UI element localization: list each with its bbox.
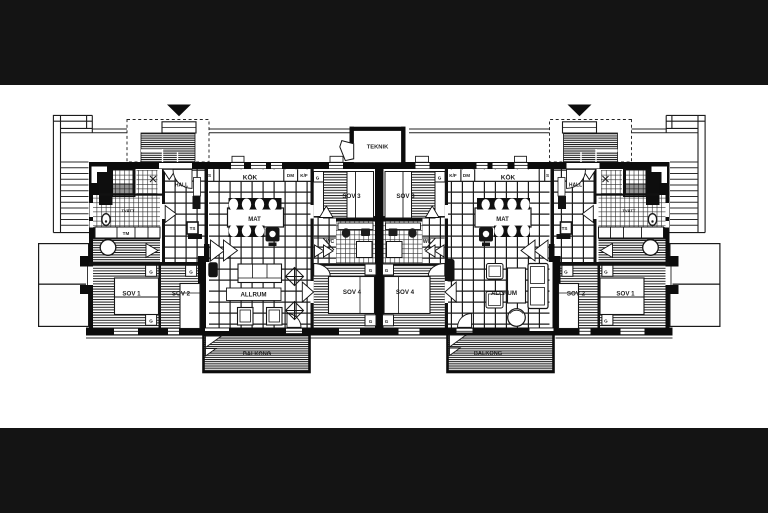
- svg-text:G: G: [189, 269, 193, 274]
- svg-text:SOV 3: SOV 3: [342, 193, 361, 200]
- svg-text:G: G: [316, 175, 320, 180]
- svg-text:S: S: [546, 173, 549, 178]
- svg-text:ALLRUM: ALLRUM: [240, 292, 266, 299]
- svg-text:SOV 2: SOV 2: [172, 291, 191, 298]
- svg-text:TS: TS: [562, 226, 568, 231]
- svg-text:HALL: HALL: [175, 183, 188, 189]
- svg-text:G: G: [564, 269, 568, 274]
- svg-text:G: G: [369, 268, 373, 273]
- svg-text:K/F: K/F: [449, 173, 457, 178]
- svg-text:HALL: HALL: [569, 183, 582, 189]
- svg-text:TS: TS: [190, 226, 196, 231]
- svg-text:MAT: MAT: [248, 217, 261, 223]
- svg-text:MAT: MAT: [496, 217, 509, 223]
- svg-text:SOV 1: SOV 1: [122, 291, 141, 298]
- svg-text:G: G: [604, 269, 608, 274]
- svg-text:K/F: K/F: [300, 173, 308, 178]
- svg-text:SOV 3: SOV 3: [396, 193, 415, 200]
- svg-text:S: S: [208, 173, 211, 178]
- svg-text:KÖK: KÖK: [243, 172, 258, 181]
- svg-text:G: G: [149, 318, 153, 323]
- svg-text:SOV 4: SOV 4: [396, 289, 415, 296]
- svg-text:DM: DM: [287, 173, 294, 178]
- svg-text:G: G: [385, 268, 389, 273]
- svg-text:G: G: [438, 175, 442, 180]
- svg-text:SOV 1: SOV 1: [616, 291, 635, 298]
- svg-text:TVÄTT: TVÄTT: [623, 208, 636, 213]
- svg-text:TVÄTT: TVÄTT: [122, 208, 135, 213]
- svg-text:G: G: [149, 269, 153, 274]
- svg-text:TEKNIK: TEKNIK: [367, 145, 389, 151]
- svg-text:SOV 4: SOV 4: [343, 289, 362, 296]
- svg-text:ALLRUM: ALLRUM: [491, 290, 517, 297]
- svg-text:G: G: [385, 319, 389, 324]
- svg-text:BALKONG: BALKONG: [474, 351, 502, 357]
- svg-text:BALKONG: BALKONG: [243, 352, 271, 358]
- svg-text:DM: DM: [463, 173, 470, 178]
- svg-text:G: G: [604, 318, 608, 323]
- svg-text:KÖK: KÖK: [501, 172, 516, 181]
- svg-text:SOV 2: SOV 2: [567, 291, 586, 298]
- svg-text:TM: TM: [123, 231, 130, 236]
- svg-text:WC: WC: [423, 239, 432, 245]
- svg-text:WC: WC: [326, 239, 335, 245]
- svg-text:G: G: [369, 319, 373, 324]
